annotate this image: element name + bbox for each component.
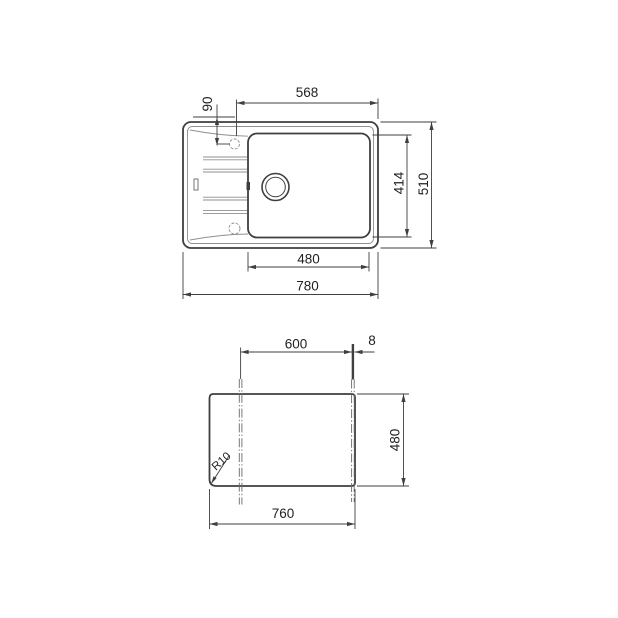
overflow-slot xyxy=(194,179,198,190)
dim-label-760: 760 xyxy=(272,506,295,521)
page: 568 90 414 510 xyxy=(0,0,618,618)
dim-label-480-cutout: 480 xyxy=(388,429,403,452)
dim-label-8: 8 xyxy=(368,333,376,348)
dim-label-568: 568 xyxy=(296,85,319,100)
dim-label-510: 510 xyxy=(416,173,431,196)
technical-drawing: 568 90 414 510 xyxy=(0,0,618,618)
cutout-outline xyxy=(210,394,356,486)
dim-label-414: 414 xyxy=(392,171,407,194)
dim-label-480-bowl: 480 xyxy=(297,252,320,267)
dim-label-90: 90 xyxy=(200,96,215,111)
dim-label-780: 780 xyxy=(296,279,319,294)
bowl-edge-notch xyxy=(247,182,251,190)
dim-label-600: 600 xyxy=(285,337,308,352)
